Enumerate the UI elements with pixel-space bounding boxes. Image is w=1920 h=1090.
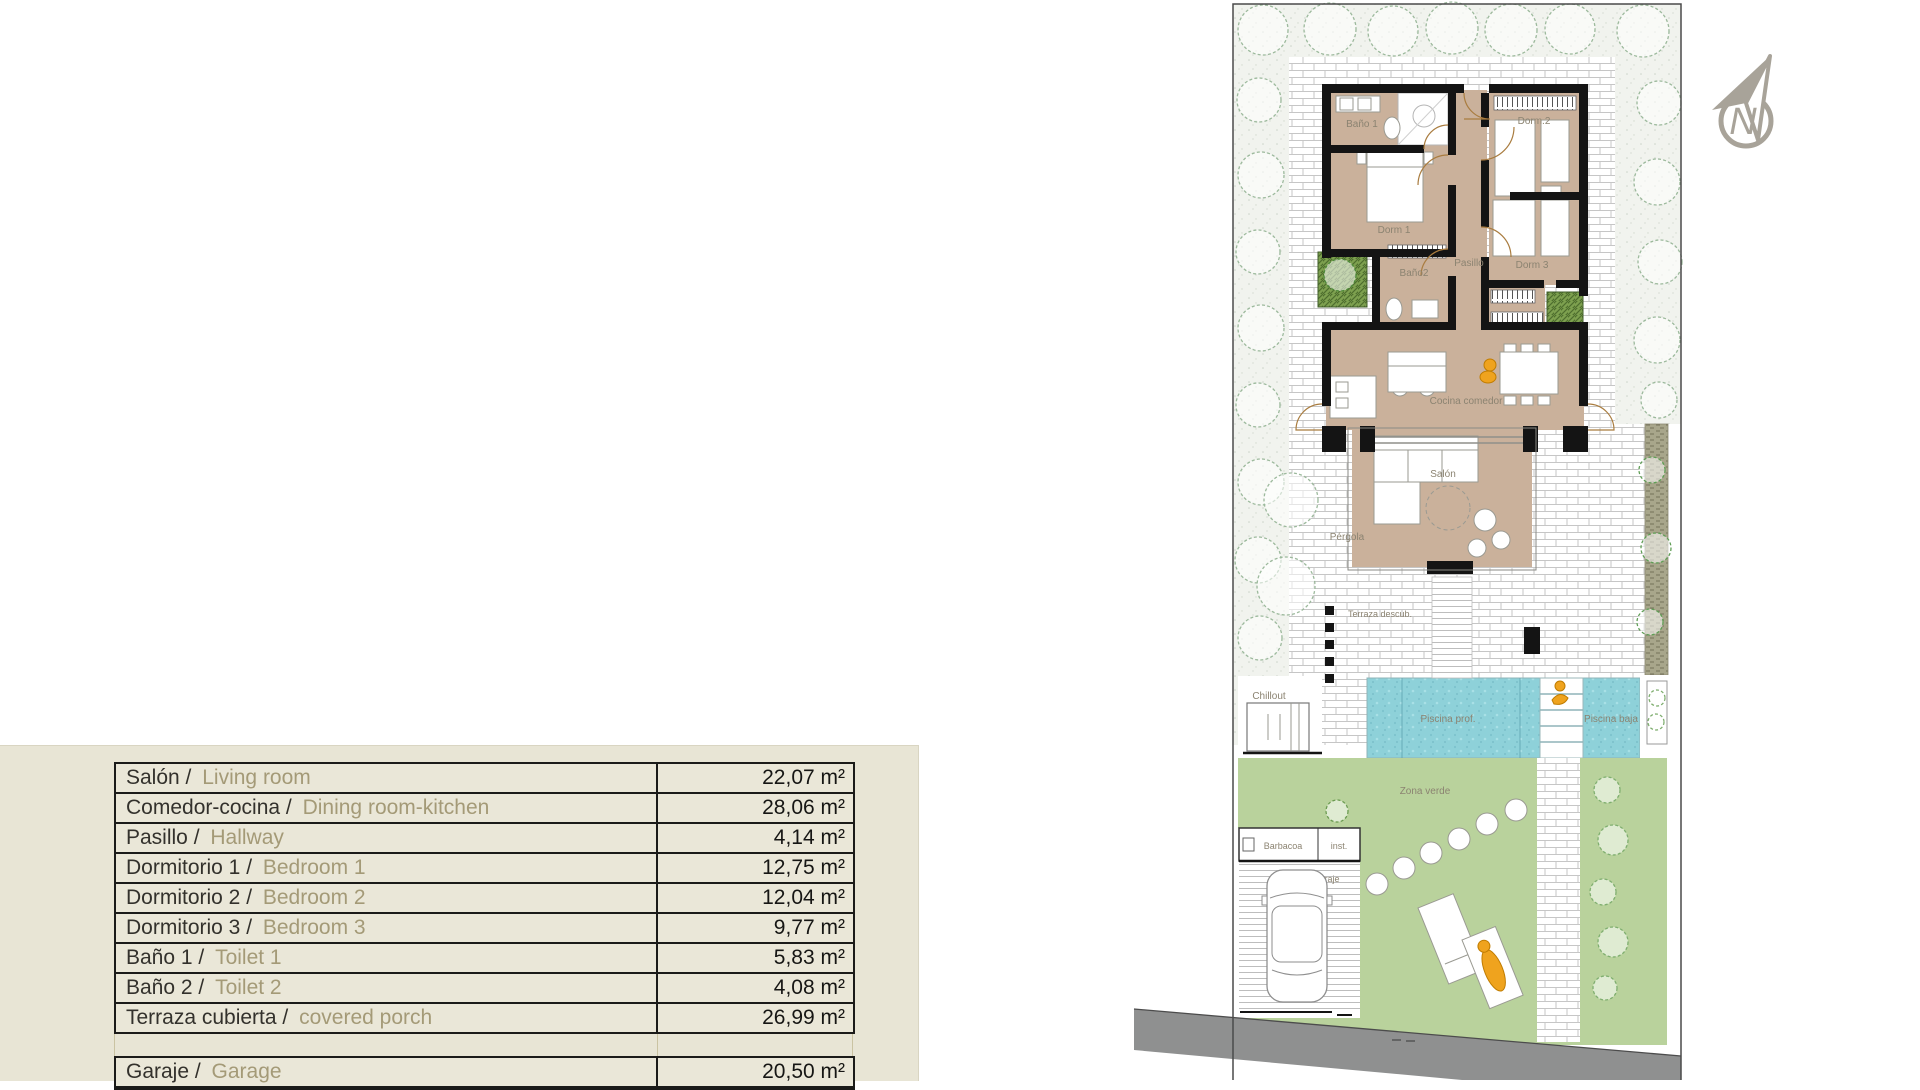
room-label-english: covered porch <box>299 1006 432 1029</box>
bathroom1-label: Baño 1 <box>1346 119 1378 130</box>
table-gap-divider <box>657 1034 658 1056</box>
hallway-label: Pasillo <box>1454 258 1484 269</box>
room-area-cell: 26,99 m² <box>658 1004 853 1032</box>
room-label-cell: Garaje / Garage <box>116 1058 658 1086</box>
terrace-label: Terraza descub. <box>1348 609 1412 619</box>
poolside-planter <box>1640 675 1681 758</box>
room-area-cell: 28,06 m² <box>658 794 853 822</box>
bedroom1-label: Dorm 1 <box>1378 225 1411 236</box>
car-icon <box>1262 870 1332 1002</box>
chillout-area: Chillout <box>1238 676 1322 755</box>
bedroom2-label: Dorm.2 <box>1518 116 1551 127</box>
bedroom3-label: Dorm 3 <box>1516 260 1549 271</box>
table-row: Pasillo / Hallway 4,14 m² <box>116 824 853 854</box>
pool: Piscina prof. Piscina baja <box>1367 678 1640 758</box>
table-row: Baño 2 / Toilet 2 4,08 m² <box>116 974 853 1004</box>
room-label-spanish: Comedor-cocina / <box>126 796 292 819</box>
room-label-spanish: Dormitorio 2 / <box>126 886 252 909</box>
garden-path <box>1537 758 1580 1042</box>
table-row: Comedor-cocina / Dining room-kitchen 28,… <box>116 794 853 824</box>
room-label-cell: Baño 1 / Toilet 1 <box>116 944 658 972</box>
north-arrow-icon: N <box>1712 56 1771 146</box>
room-label-cell: Terraza cubierta / covered porch <box>116 1004 658 1032</box>
room-label-cell: Dormitorio 3 / Bedroom 3 <box>116 914 658 942</box>
north-letter: N <box>1729 101 1757 143</box>
room-area-cell: 12,75 m² <box>658 854 853 882</box>
room-area-cell: 4,08 m² <box>658 974 853 1002</box>
room-label-spanish: Dormitorio 1 / <box>126 856 252 879</box>
room-label-cell: Salón / Living room <box>116 764 658 792</box>
pool-deep-label: Piscina prof. <box>1420 714 1475 725</box>
room-label-cell: Dormitorio 1 / Bedroom 1 <box>116 854 658 882</box>
barbecue-box: Barbacoa inst. <box>1239 828 1360 861</box>
room-area-cell: 12,04 m² <box>658 884 853 912</box>
room-label-spanish: Baño 2 / <box>126 976 204 999</box>
table-row: Dormitorio 3 / Bedroom 3 9,77 m² <box>116 914 853 944</box>
room-label-spanish: Dormitorio 3 / <box>126 916 252 939</box>
room-area-cell: 20,50 m² <box>658 1058 853 1086</box>
room-label-english: Dining room-kitchen <box>303 796 490 819</box>
room-label-cell: Pasillo / Hallway <box>116 824 658 852</box>
kitchen-label: Cocina comedor <box>1430 396 1503 407</box>
table-row: Dormitorio 2 / Bedroom 2 12,04 m² <box>116 884 853 914</box>
room-area-cell: 5,83 m² <box>658 944 853 972</box>
room-label-english: Hallway <box>210 826 284 849</box>
room-label-english: Toilet 2 <box>215 976 282 999</box>
table-row: Salón / Living room 22,07 m² <box>116 764 853 794</box>
living-label: Salón <box>1430 469 1456 480</box>
room-label-cell: Dormitorio 2 / Bedroom 2 <box>116 884 658 912</box>
room-label-english: Living room <box>202 766 311 789</box>
room-label-spanish: Salón / <box>126 766 191 789</box>
room-label-cell: Baño 2 / Toilet 2 <box>116 974 658 1002</box>
garage-table: Garaje / Garage 20,50 m² <box>114 1056 855 1090</box>
green-zone-label: Zona verde <box>1400 786 1451 797</box>
chillout-label: Chillout <box>1252 691 1286 702</box>
barbecue-inst-label: inst. <box>1331 841 1348 851</box>
room-label-spanish: Baño 1 / <box>126 946 204 969</box>
floor-plan: Piscina prof. Piscina baja Zona verde <box>1100 0 1920 1080</box>
room-label-spanish: Terraza cubierta / <box>126 1006 288 1029</box>
room-label-spanish: Pasillo / <box>126 826 200 849</box>
table-row: Dormitorio 1 / Bedroom 1 12,75 m² <box>116 854 853 884</box>
table-row: Terraza cubierta / covered porch 26,99 m… <box>116 1004 853 1034</box>
barbecue-label: Barbacoa <box>1264 841 1303 851</box>
room-label-english: Bedroom 1 <box>263 856 366 879</box>
bathroom2-label: Baño2 <box>1400 268 1429 279</box>
table-row: Baño 1 / Toilet 1 5,83 m² <box>116 944 853 974</box>
room-label-english: Bedroom 2 <box>263 886 366 909</box>
room-label-english: Toilet 1 <box>215 946 282 969</box>
room-area-cell: 4,14 m² <box>658 824 853 852</box>
pergola-label: Pérgola <box>1330 532 1365 543</box>
pool-shallow-label: Piscina baja <box>1584 714 1638 725</box>
area-table: Salón / Living room 22,07 m² Comedor-coc… <box>114 762 855 1034</box>
room-area-cell: 9,77 m² <box>658 914 853 942</box>
walkway <box>1432 577 1472 678</box>
room-label-english: Bedroom 3 <box>263 916 366 939</box>
room-label-cell: Comedor-cocina / Dining room-kitchen <box>116 794 658 822</box>
room-area-cell: 22,07 m² <box>658 764 853 792</box>
table-gap <box>114 1034 853 1056</box>
table-row: Garaje / Garage 20,50 m² <box>116 1058 853 1088</box>
garage-area: Barbacoa inst. Garaje <box>1238 828 1360 1034</box>
